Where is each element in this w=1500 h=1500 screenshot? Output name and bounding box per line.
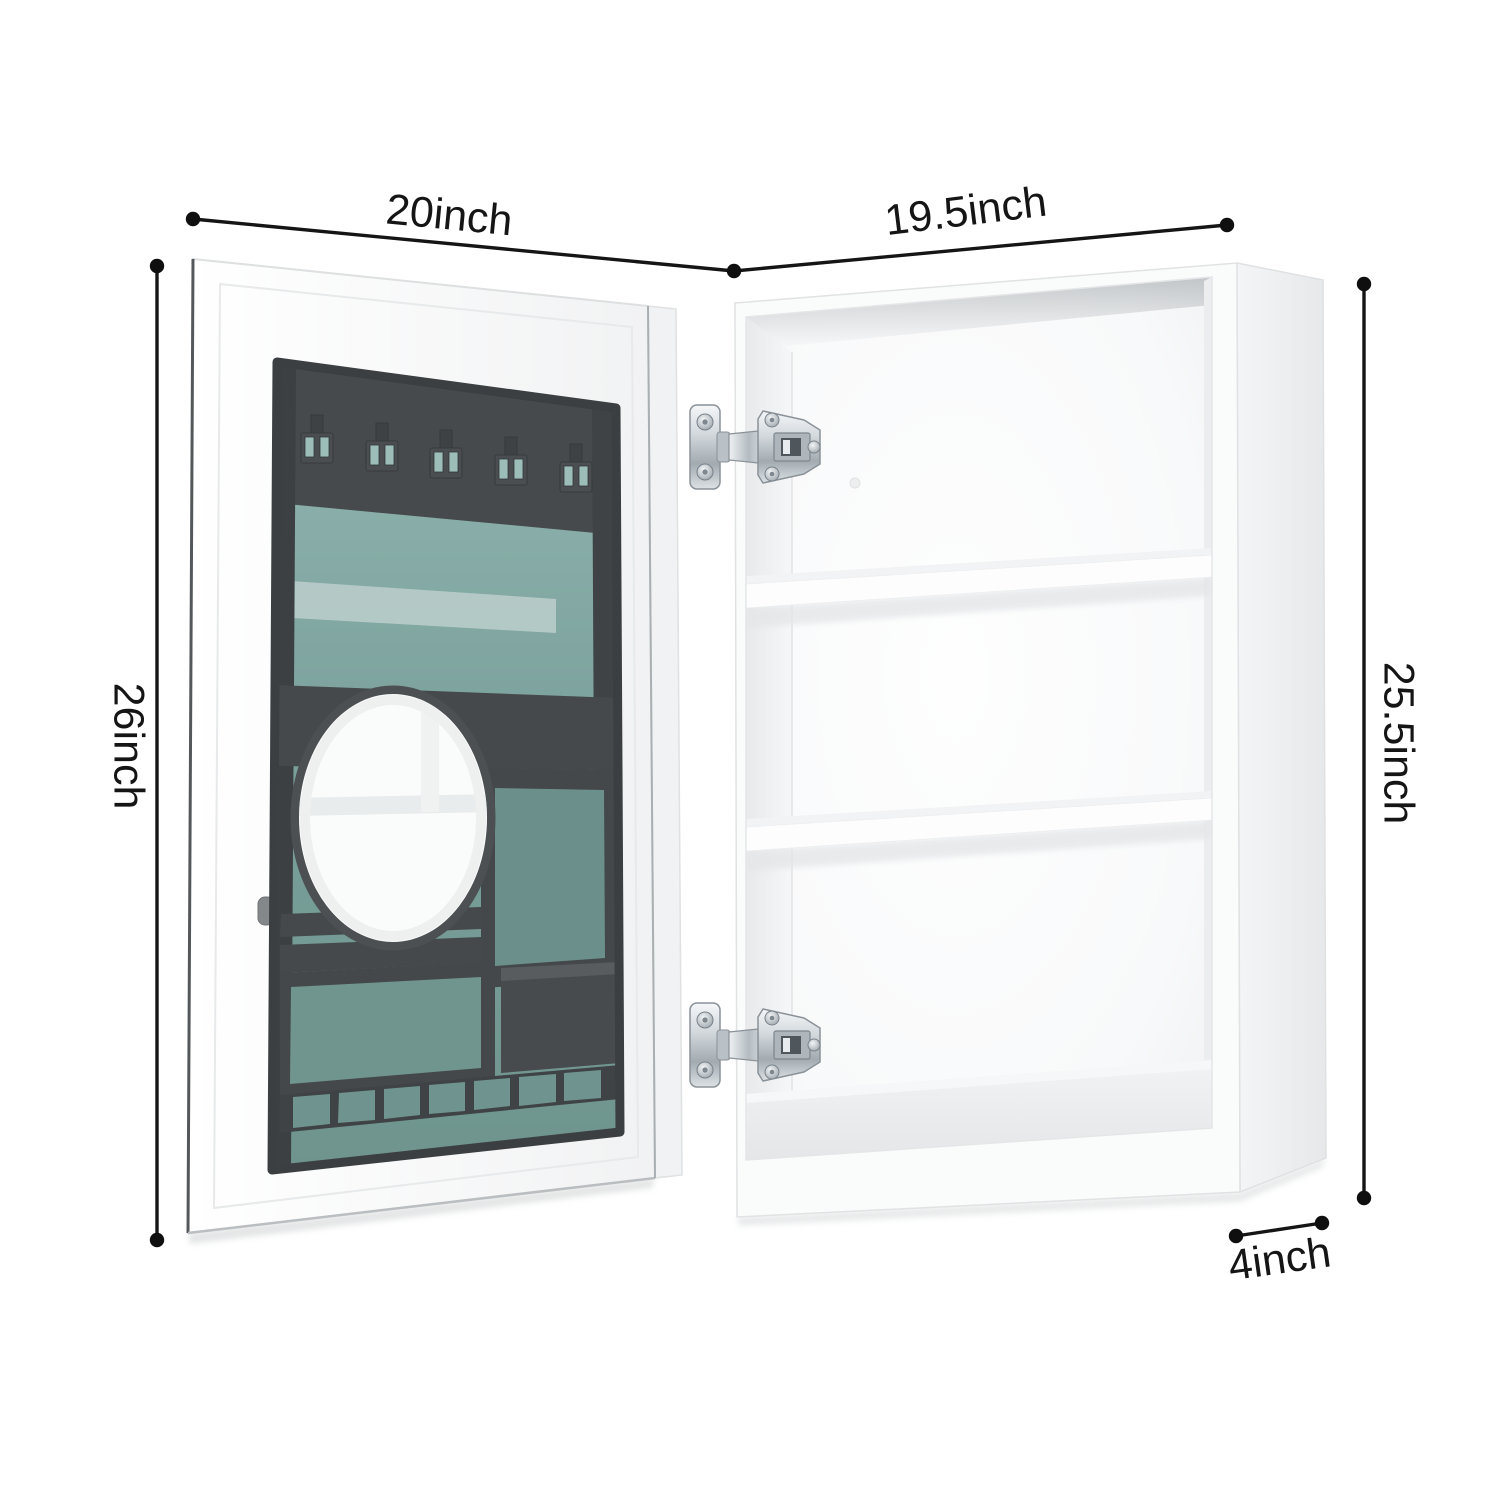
dim-endpoint-dot	[186, 212, 200, 226]
dim-endpoint-dot	[150, 1233, 164, 1247]
dim-endpoint-dot	[1357, 277, 1371, 291]
product-dimension-diagram: 20inch 19.5inch 26inch 25.5inch 4inch	[0, 0, 1500, 1500]
dim-endpoint-dot	[1220, 218, 1234, 232]
right-slot-window	[495, 788, 605, 966]
dim-label-body-width: 19.5inch	[882, 178, 1049, 245]
dim-label-body-height: 25.5inch	[1375, 662, 1423, 825]
cabinet-side-face	[1237, 263, 1326, 1192]
diagram-canvas: 20inch 19.5inch 26inch 25.5inch 4inch	[0, 0, 1500, 1500]
cabinet-body	[735, 263, 1326, 1226]
dim-label-door-height: 26inch	[105, 683, 153, 810]
dim-endpoint-dot	[1357, 1191, 1371, 1205]
dim-endpoint-dot	[150, 259, 164, 273]
dim-label-door-width: 20inch	[384, 185, 515, 245]
dim-endpoint-dot	[727, 264, 741, 278]
shelf-pin-hole	[850, 478, 860, 488]
cabinet-door	[188, 259, 682, 1244]
door-organizer	[258, 362, 620, 1170]
left-bin-window	[290, 977, 481, 1084]
interior-right-shadow	[1204, 277, 1212, 1134]
